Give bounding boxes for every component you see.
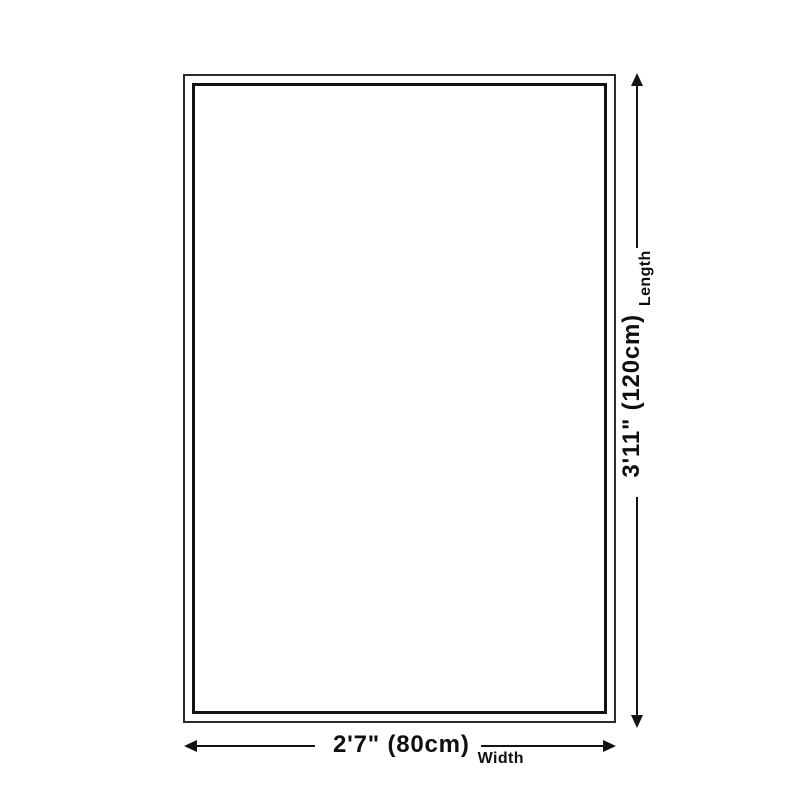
length-arrow-line-bottom (636, 497, 638, 718)
arrow-down-icon (631, 715, 643, 728)
rug-outline-outer (183, 74, 616, 723)
length-value: 3'11" (120cm) (620, 314, 644, 478)
width-arrow-line-left (195, 745, 315, 747)
rug-outline-inner (192, 83, 607, 714)
length-arrow-line-top (636, 84, 638, 248)
length-axis-label: Length (638, 250, 654, 306)
length-dimension-label: 3'11" (120cm) Length (620, 250, 644, 477)
width-dimension-label: 2'7" (80cm) Width (333, 733, 524, 757)
width-value: 2'7" (80cm) (333, 733, 470, 757)
arrow-right-icon (603, 740, 616, 752)
rug-size-diagram: 3'11" (120cm) Length 2'7" (80cm) Width (0, 0, 800, 800)
width-axis-label: Width (478, 751, 524, 767)
